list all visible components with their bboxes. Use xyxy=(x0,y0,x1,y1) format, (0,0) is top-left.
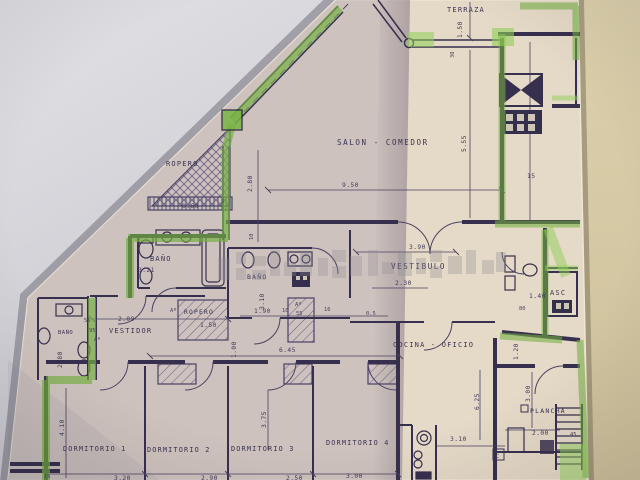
photo-vignette xyxy=(0,0,640,480)
floor-plan-svg: TERRAZA SALON - COMEDOR ROPERO BAÑO BAÑO… xyxy=(0,0,640,480)
floor-plan-photo: TERRAZA SALON - COMEDOR ROPERO BAÑO BAÑO… xyxy=(0,0,640,480)
